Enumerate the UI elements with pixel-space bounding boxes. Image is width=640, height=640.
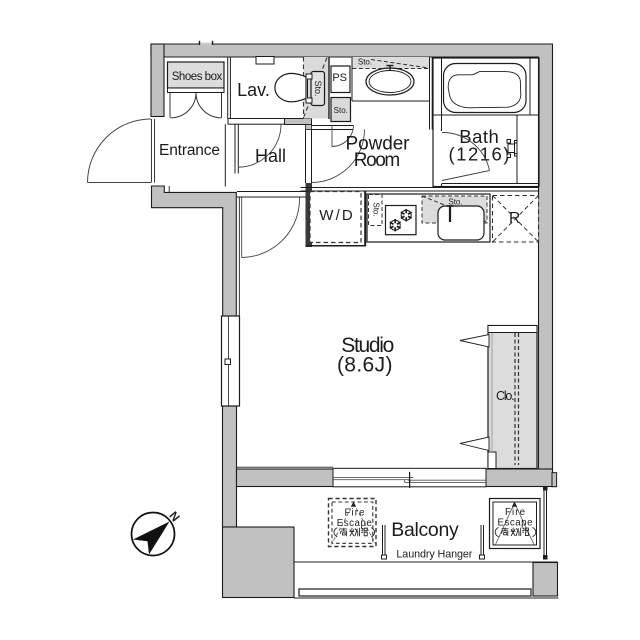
svg-text:Entrance: Entrance xyxy=(159,142,220,159)
svg-text:Escape: Escape xyxy=(498,518,533,529)
svg-text:Fire: Fire xyxy=(505,507,525,518)
svg-text:Clo.: Clo. xyxy=(496,389,515,403)
svg-text:Room: Room xyxy=(354,150,401,171)
svg-text:Sto.: Sto. xyxy=(371,202,380,216)
svg-text:W/D: W/D xyxy=(319,207,353,224)
svg-text:Balcony: Balcony xyxy=(391,519,459,541)
svg-text:Sto.: Sto. xyxy=(358,58,372,67)
svg-text:(8.6J): (8.6J) xyxy=(337,354,393,377)
svg-text:Laundry Hanger: Laundry Hanger xyxy=(396,549,472,561)
svg-text:(1216): (1216) xyxy=(449,144,510,165)
svg-text:Sto.: Sto. xyxy=(448,198,462,207)
svg-text:Escape: Escape xyxy=(337,518,372,529)
svg-text:Fire: Fire xyxy=(345,507,365,518)
svg-text:R: R xyxy=(509,210,520,227)
svg-text:Hall: Hall xyxy=(255,146,286,166)
svg-text:Shoes box: Shoes box xyxy=(172,71,223,83)
svg-text:Sto.: Sto. xyxy=(334,106,348,115)
svg-text:PS: PS xyxy=(332,72,347,84)
svg-text:Sto.: Sto. xyxy=(313,80,323,96)
svg-text:Lav.: Lav. xyxy=(237,80,270,100)
